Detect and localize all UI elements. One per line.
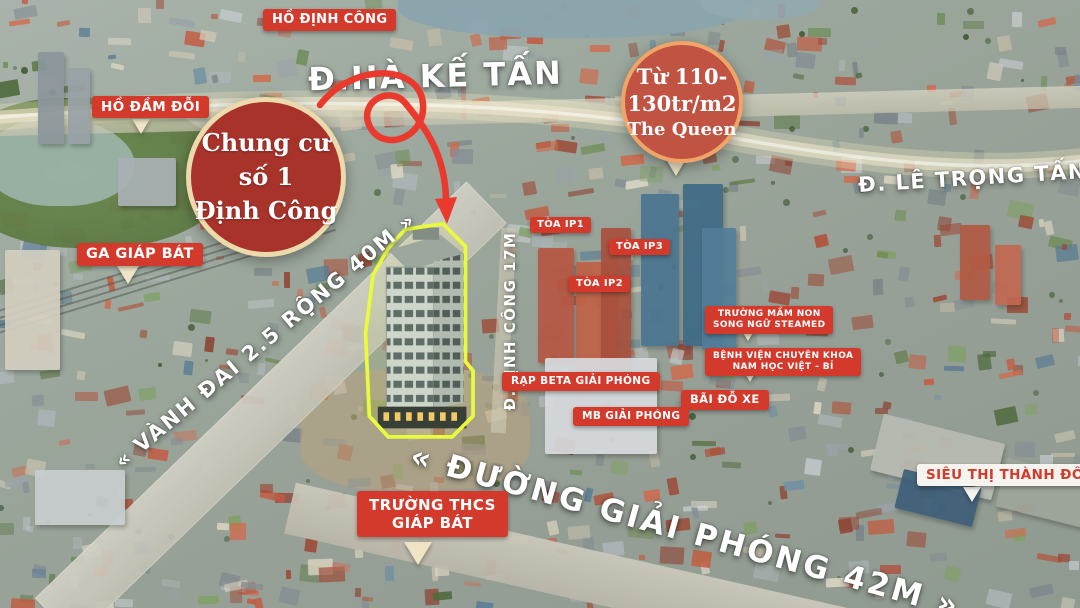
badge-ga-giap-bat: GA GIÁP BÁT <box>77 243 203 266</box>
landmark-building-mass <box>5 250 60 370</box>
badge-line: GIÁP BÁT <box>369 514 496 532</box>
aerial-map: Đ.HÀ KẾ TẤN Đ. LÊ TRỌNG TẤN « VÀNH ĐAI 2… <box>0 0 1080 608</box>
landmark-building-mass <box>641 194 679 346</box>
landmark-building-mass <box>35 470 125 525</box>
badge-line: BỆNH VIỆN CHUYÊN KHOA <box>713 351 853 362</box>
badge-truong-thcs: TRƯỜNG THCS GIÁP BÁT <box>357 491 508 537</box>
badge-line: TRƯỜNG MẦM NON <box>713 309 825 320</box>
landmark-building-mass <box>995 245 1021 305</box>
landmark-building-mass <box>538 248 574 363</box>
landmark-building-mass <box>960 225 990 300</box>
pointer-truong-thcs <box>404 542 432 565</box>
callout-price-the-queen: Từ 110- 130tr/m2 The Queen <box>621 41 743 163</box>
badge-mb-giai-phong: MB GIẢI PHÓNG <box>573 407 689 426</box>
pointer-sieu-thi <box>963 487 981 502</box>
badge-ho-dam-doi: HỒ ĐẦM ĐỖI <box>92 96 209 118</box>
callout-chung-cu: Chung cư số 1 Định Công <box>186 97 346 257</box>
callout-line: số 1 <box>239 160 294 194</box>
badge-toa-ip3: TÒA IP3 <box>609 239 670 255</box>
pointer-ho-dam-doi <box>132 119 150 134</box>
badge-sieu-thi: SIÊU THỊ THÀNH ĐÔ <box>917 464 1080 486</box>
pointer-ga-giap-bat <box>117 266 139 284</box>
badge-benh-vien: BỆNH VIỆN CHUYÊN KHOA NAM HỌC VIỆT - BỈ <box>705 348 861 376</box>
badge-line: NAM HỌC VIỆT - BỈ <box>713 362 853 373</box>
callout-line: Định Công <box>195 194 338 228</box>
badge-ho-dinh-cong: HỒ ĐỊNH CÔNG <box>263 9 396 31</box>
badge-line: SONG NGỮ STEAMED <box>713 320 825 331</box>
callout-line: Từ 110- <box>637 63 728 90</box>
badge-toa-ip1: TÒA IP1 <box>530 217 591 233</box>
landmark-building-mass <box>68 68 90 144</box>
badge-rap-beta: RẠP BETA GIẢI PHÓNG <box>502 372 660 391</box>
badge-line: TRƯỜNG THCS <box>369 496 496 514</box>
badge-truong-mam-non: TRƯỜNG MẦM NON SONG NGỮ STEAMED <box>705 306 833 334</box>
landmark-building-mass <box>38 52 64 144</box>
callout-line: Chung cư <box>202 126 331 160</box>
badge-bai-do-xe: BÃI ĐỖ XE <box>681 390 769 410</box>
badge-toa-ip2: TÒA IP2 <box>569 276 630 292</box>
callout-line: The Queen <box>628 118 737 141</box>
callout-line: 130tr/m2 <box>627 90 736 117</box>
landmark-building-mass <box>118 158 176 206</box>
